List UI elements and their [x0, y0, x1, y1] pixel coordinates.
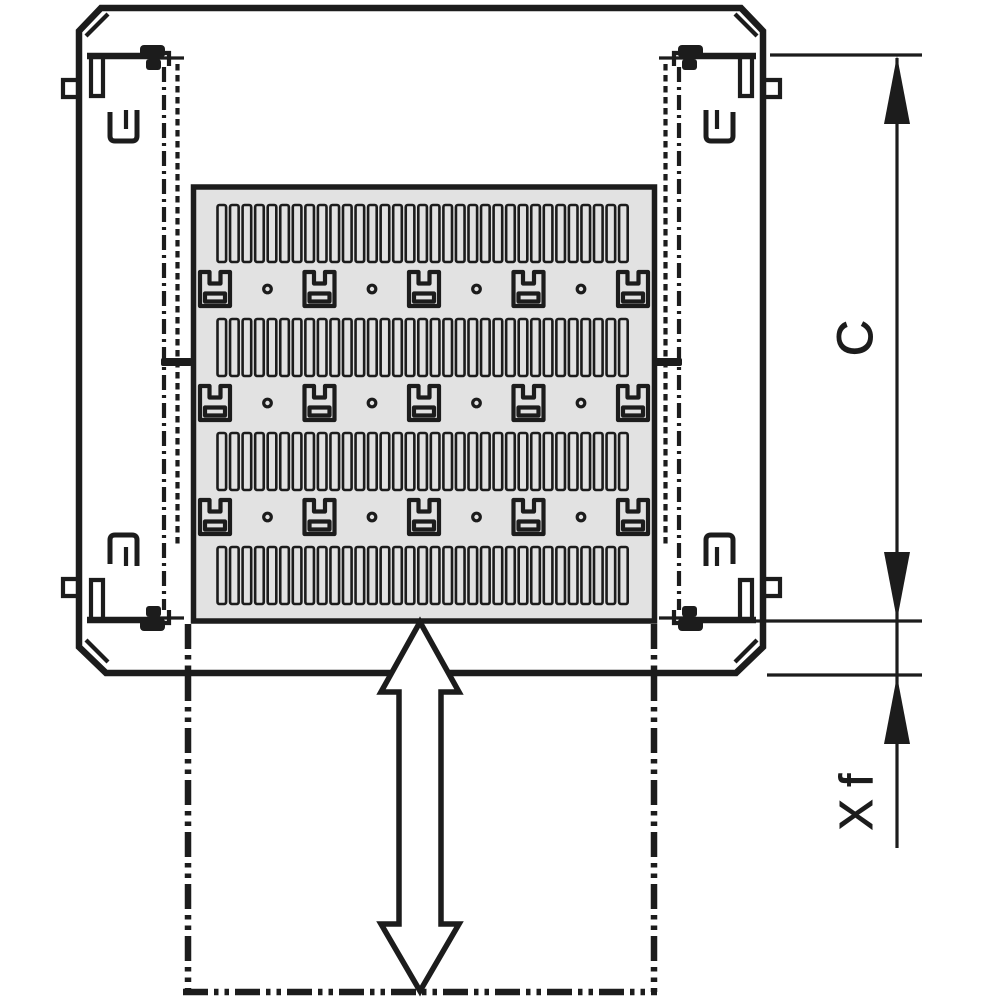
dimension-label-extension: X f [830, 774, 882, 830]
slide-direction-arrow [381, 622, 459, 991]
dimension-arrowhead-down [884, 552, 910, 620]
dimension-label-depth: C [827, 320, 883, 356]
dimension-arrowhead-up-bottom [884, 676, 910, 744]
dimension-arrowhead-up-top [884, 56, 910, 124]
slide-rail-hidden-lines-left [161, 64, 192, 610]
technical-diagram: C X f [0, 0, 1000, 1000]
cabinet-shelf-drawing: C X f [0, 0, 1000, 1000]
dimensioning: C X f [743, 55, 922, 848]
